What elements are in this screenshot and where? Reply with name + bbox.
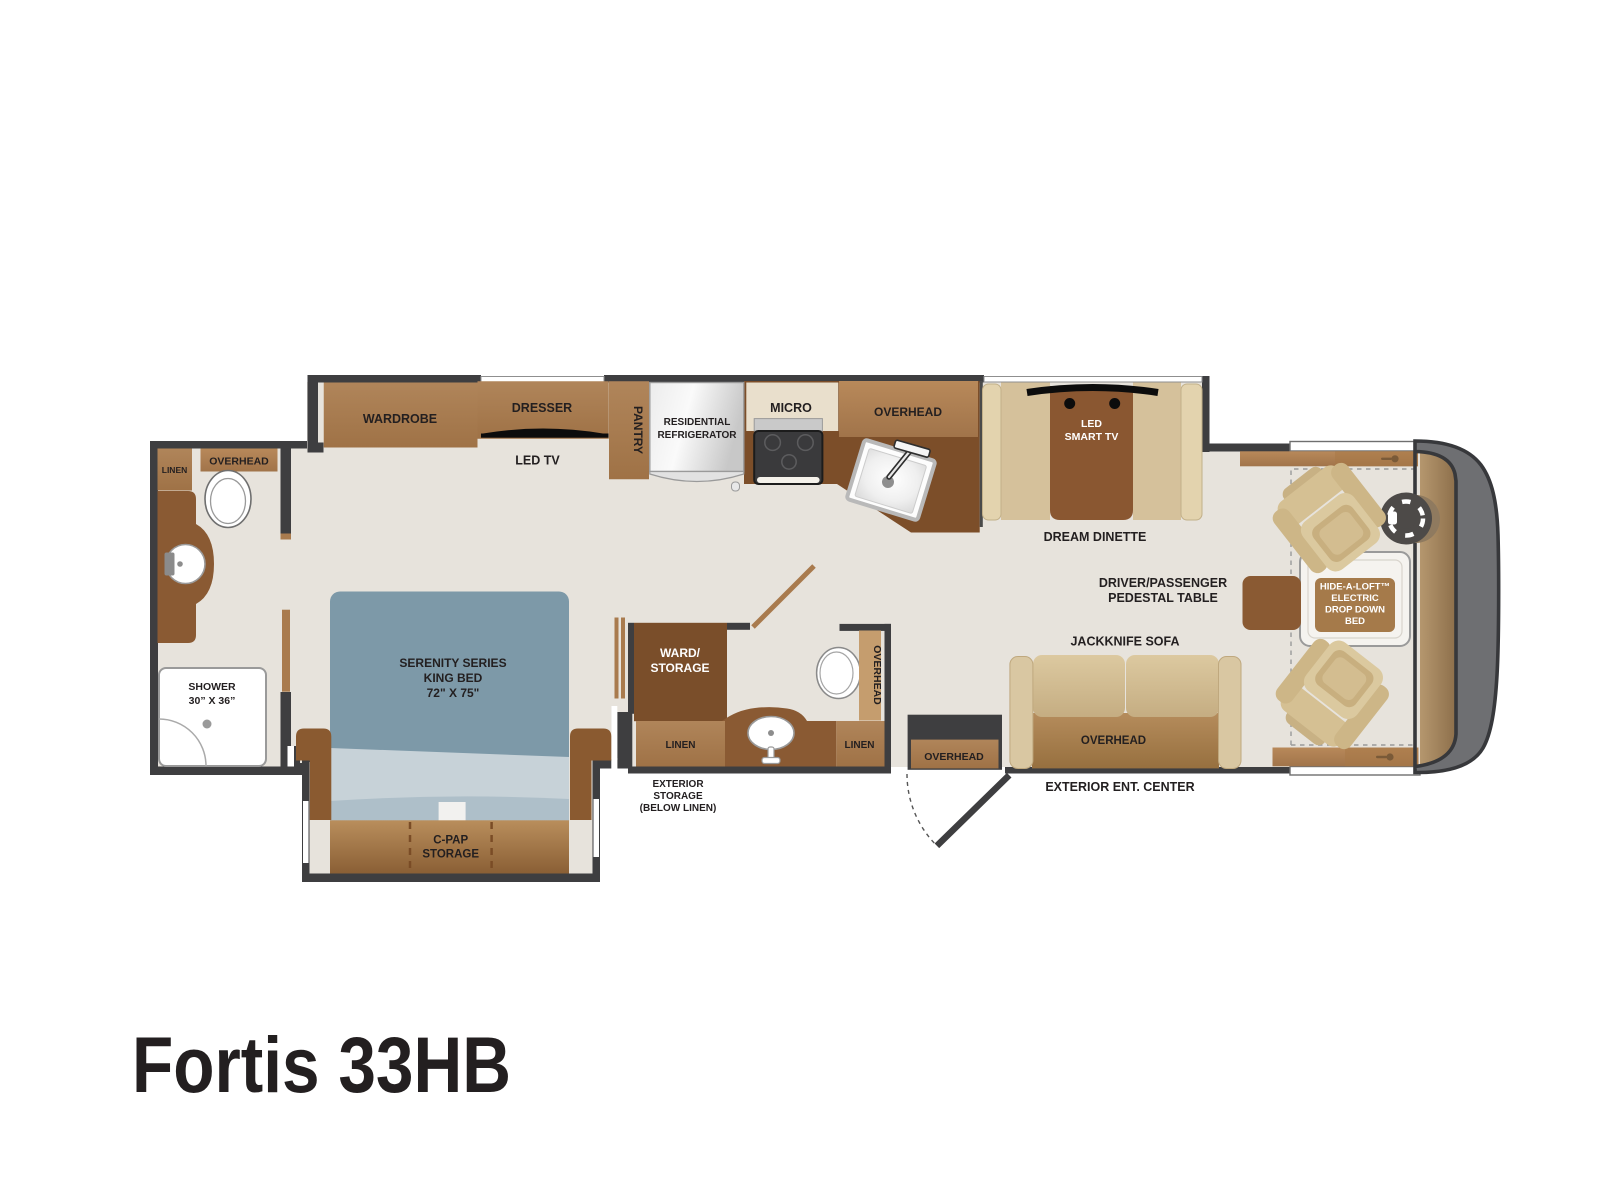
svg-text:SERENITY SERIES: SERENITY SERIES — [399, 656, 506, 670]
svg-text:KING BED: KING BED — [424, 671, 483, 685]
svg-text:WARDROBE: WARDROBE — [363, 412, 437, 426]
svg-text:SMART TV: SMART TV — [1065, 431, 1119, 443]
svg-text:MICRO: MICRO — [770, 401, 812, 415]
svg-text:LINEN: LINEN — [162, 465, 188, 475]
svg-text:STORAGE: STORAGE — [422, 849, 479, 861]
svg-text:SHOWER: SHOWER — [188, 681, 236, 693]
svg-text:STORAGE: STORAGE — [650, 661, 709, 675]
svg-text:RESIDENTIAL: RESIDENTIAL — [664, 417, 731, 428]
svg-text:PANTRY: PANTRY — [631, 406, 645, 454]
svg-text:WARD/: WARD/ — [660, 646, 701, 660]
svg-text:OVERHEAD: OVERHEAD — [924, 751, 984, 763]
svg-text:PEDESTAL TABLE: PEDESTAL TABLE — [1108, 591, 1218, 605]
svg-text:ELECTRIC: ELECTRIC — [1331, 593, 1379, 604]
svg-text:Fortis 33HB: Fortis 33HB — [132, 1020, 511, 1109]
svg-text:OVERHEAD: OVERHEAD — [209, 456, 269, 468]
svg-text:LINEN: LINEN — [666, 740, 696, 751]
svg-text:DROP DOWN: DROP DOWN — [1325, 605, 1385, 616]
svg-text:OVERHEAD: OVERHEAD — [871, 645, 883, 705]
svg-text:OVERHEAD: OVERHEAD — [874, 405, 942, 419]
svg-text:LED TV: LED TV — [515, 454, 560, 468]
svg-text:72" X 75": 72" X 75" — [427, 686, 480, 700]
svg-text:DRIVER/PASSENGER: DRIVER/PASSENGER — [1099, 576, 1227, 590]
svg-text:(BELOW LINEN): (BELOW LINEN) — [640, 803, 717, 814]
svg-text:EXTERIOR: EXTERIOR — [652, 779, 704, 790]
svg-text:BED: BED — [1345, 616, 1365, 627]
svg-text:OVERHEAD: OVERHEAD — [1081, 735, 1146, 747]
svg-text:REFRIGERATOR: REFRIGERATOR — [657, 430, 737, 441]
svg-text:DREAM DINETTE: DREAM DINETTE — [1044, 530, 1147, 544]
svg-text:JACKKNIFE SOFA: JACKKNIFE SOFA — [1070, 635, 1179, 649]
svg-text:STORAGE: STORAGE — [653, 791, 703, 802]
svg-text:C-PAP: C-PAP — [433, 835, 468, 847]
svg-text:HIDE-A-LOFT™: HIDE-A-LOFT™ — [1320, 582, 1390, 593]
svg-text:DRESSER: DRESSER — [512, 401, 572, 415]
svg-text:30” X 36”: 30” X 36” — [189, 695, 236, 707]
svg-text:EXTERIOR ENT. CENTER: EXTERIOR ENT. CENTER — [1045, 780, 1194, 794]
svg-text:LED: LED — [1081, 418, 1102, 430]
svg-text:LINEN: LINEN — [845, 740, 875, 751]
